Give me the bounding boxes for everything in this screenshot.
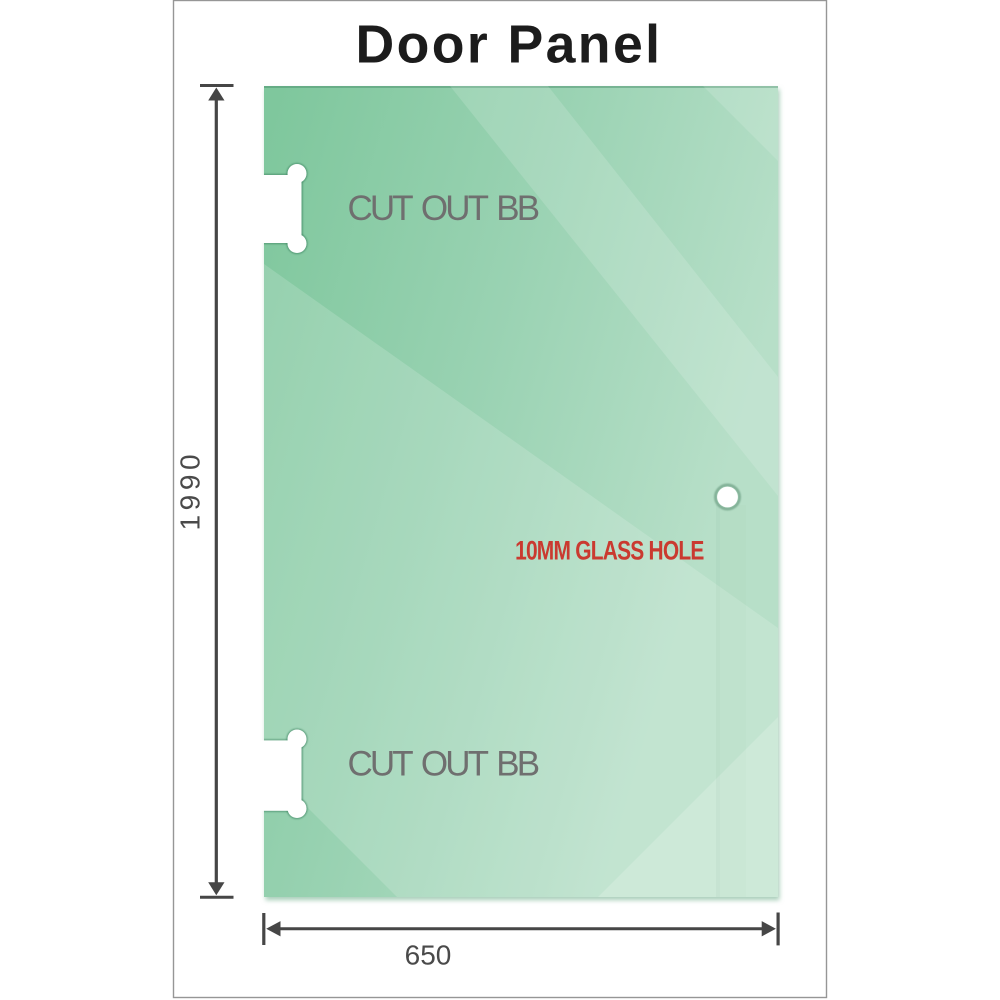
svg-text:10MM GLASS HOLE: 10MM GLASS HOLE — [515, 536, 704, 566]
svg-text:1990: 1990 — [175, 450, 206, 531]
svg-text:650: 650 — [405, 939, 452, 970]
svg-text:CUT OUT BB: CUT OUT BB — [348, 189, 539, 228]
svg-text:Door Panel: Door Panel — [356, 15, 663, 75]
svg-text:CUT OUT BB: CUT OUT BB — [348, 745, 539, 784]
